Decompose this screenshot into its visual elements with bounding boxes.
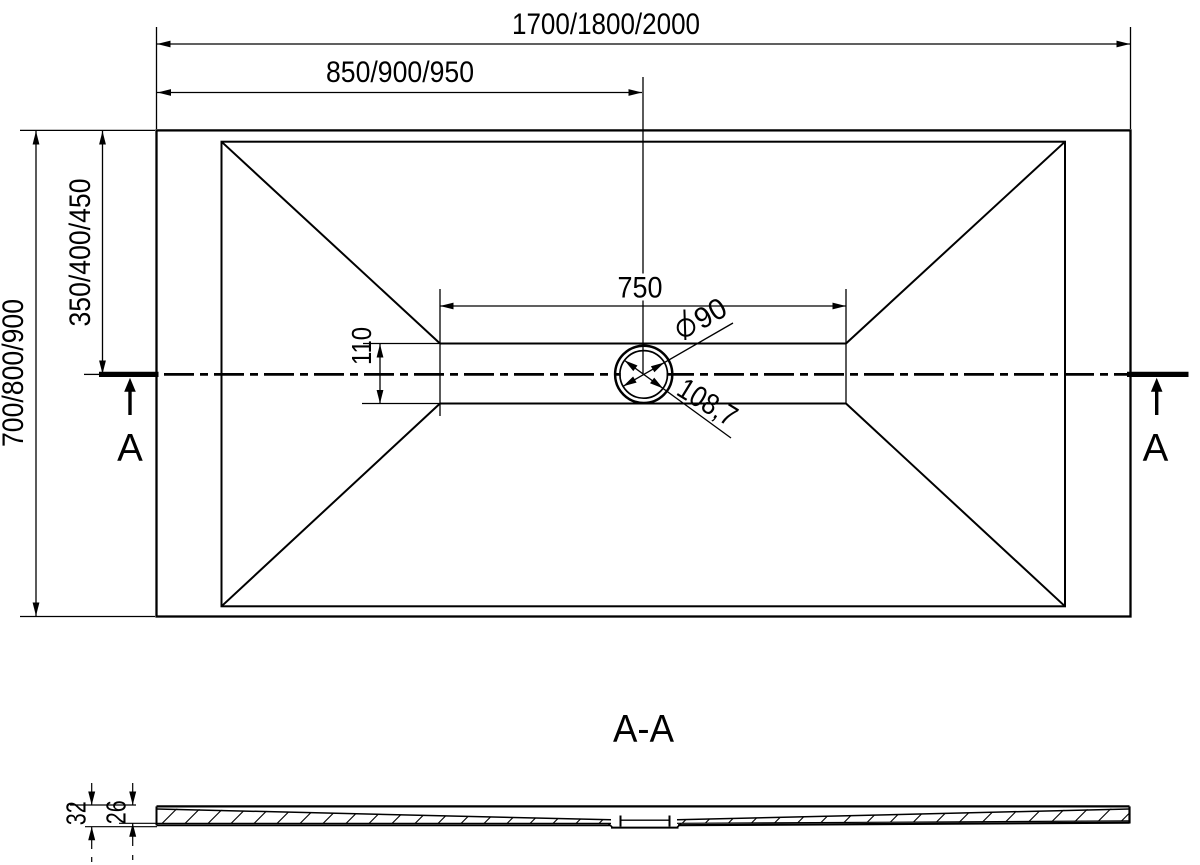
- svg-text:26: 26: [101, 800, 132, 824]
- svg-text:700/800/900: 700/800/900: [0, 299, 30, 447]
- svg-text:A: A: [1143, 427, 1169, 470]
- svg-text:A-A: A-A: [613, 708, 674, 751]
- svg-text:1700/1800/2000: 1700/1800/2000: [512, 8, 700, 41]
- svg-text:850/900/950: 850/900/950: [326, 56, 474, 89]
- svg-text:A: A: [117, 427, 143, 470]
- svg-text:350/400/450: 350/400/450: [64, 179, 97, 327]
- svg-text:110: 110: [346, 327, 377, 365]
- svg-text:750: 750: [618, 272, 663, 305]
